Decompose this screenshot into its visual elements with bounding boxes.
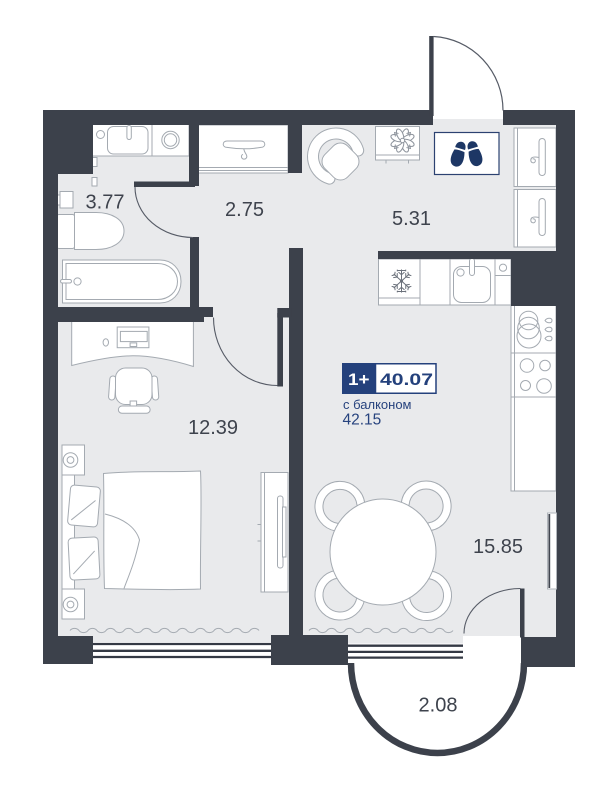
svg-text:40.07: 40.07 bbox=[380, 371, 433, 389]
svg-text:15.85: 15.85 bbox=[473, 536, 523, 558]
svg-text:12.39: 12.39 bbox=[188, 417, 238, 439]
svg-text:5.31: 5.31 bbox=[392, 208, 431, 230]
svg-text:2.75: 2.75 bbox=[225, 199, 264, 221]
svg-text:2.08: 2.08 bbox=[419, 695, 458, 717]
svg-text:1+: 1+ bbox=[348, 371, 370, 389]
svg-text:3.77: 3.77 bbox=[86, 192, 125, 214]
svg-text:42.15: 42.15 bbox=[343, 412, 382, 429]
svg-text:с балконом: с балконом bbox=[343, 397, 412, 412]
